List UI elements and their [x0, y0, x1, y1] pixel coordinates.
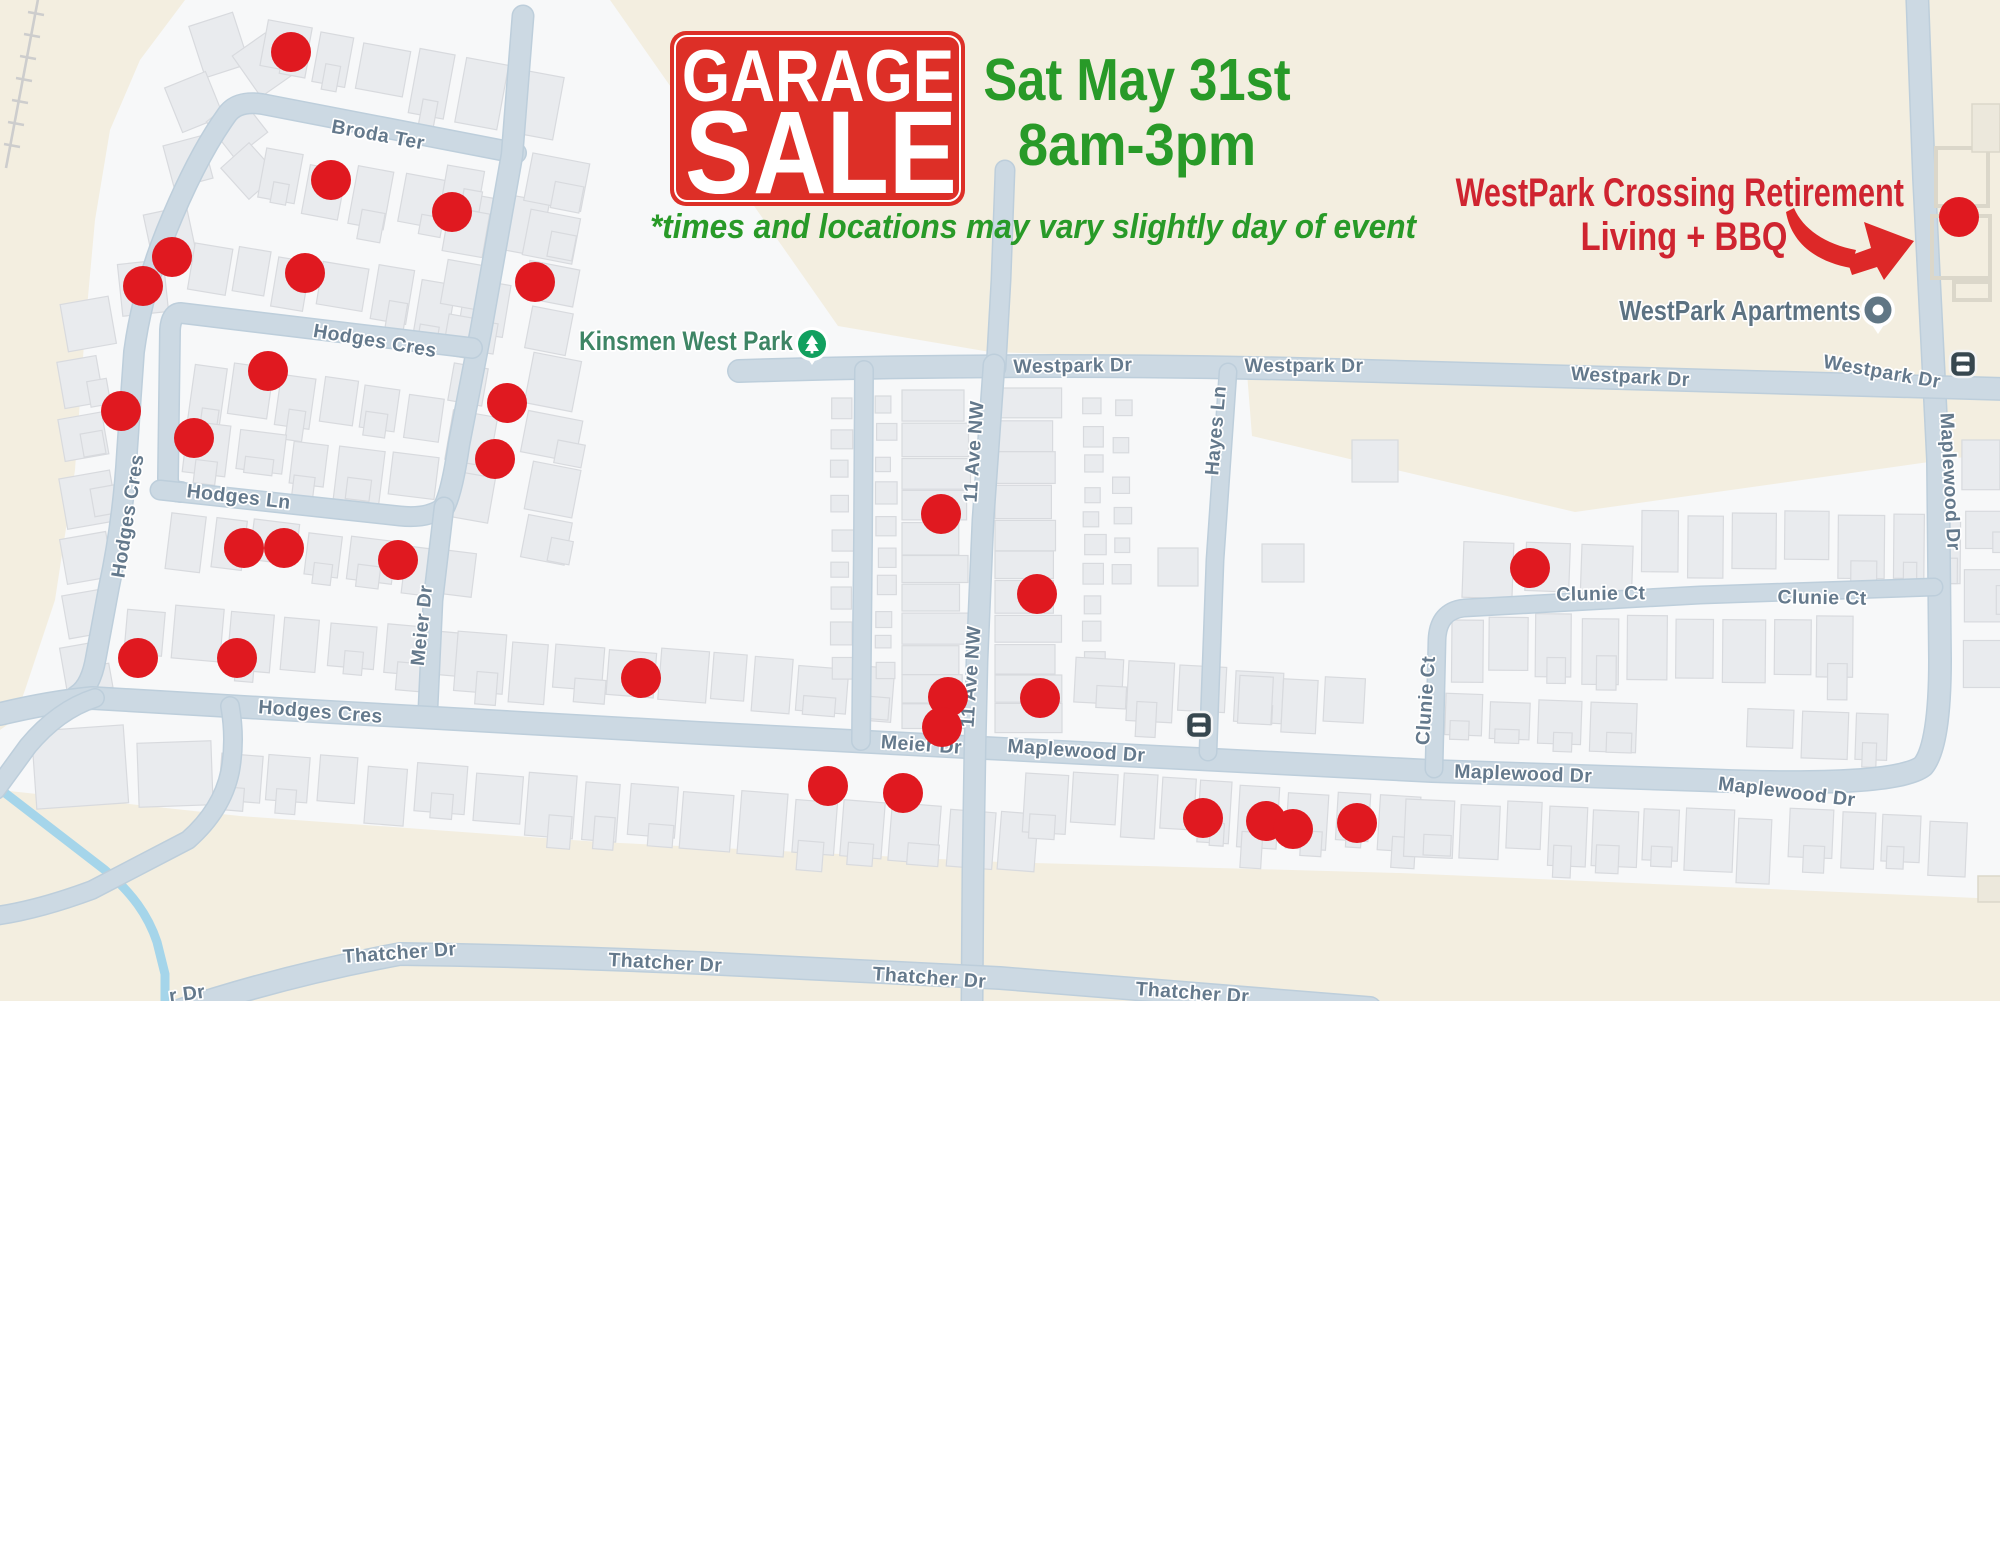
svg-text:Westpark Dr: Westpark Dr: [1245, 355, 1364, 377]
svg-text:Clunie Ct: Clunie Ct: [1556, 582, 1646, 606]
svg-text:Clunie Ct: Clunie Ct: [1777, 586, 1867, 610]
svg-text:*times and locations may vary: *times and locations may vary slightly d…: [650, 207, 1418, 245]
svg-text:SALE: SALE: [685, 87, 957, 219]
svg-text:WestPark Apartments: WestPark Apartments: [1619, 296, 1861, 326]
svg-text:Sat May 31st: Sat May 31st: [983, 46, 1290, 112]
svg-text:Kinsmen West Park: Kinsmen West Park: [579, 326, 793, 356]
svg-text:Living + BBQ: Living + BBQ: [1581, 214, 1788, 259]
svg-text:WestPark Crossing Retirement: WestPark Crossing Retirement: [1456, 170, 1904, 215]
svg-text:Westpark Dr: Westpark Dr: [1013, 354, 1132, 378]
svg-text:8am-3pm: 8am-3pm: [1018, 113, 1256, 179]
